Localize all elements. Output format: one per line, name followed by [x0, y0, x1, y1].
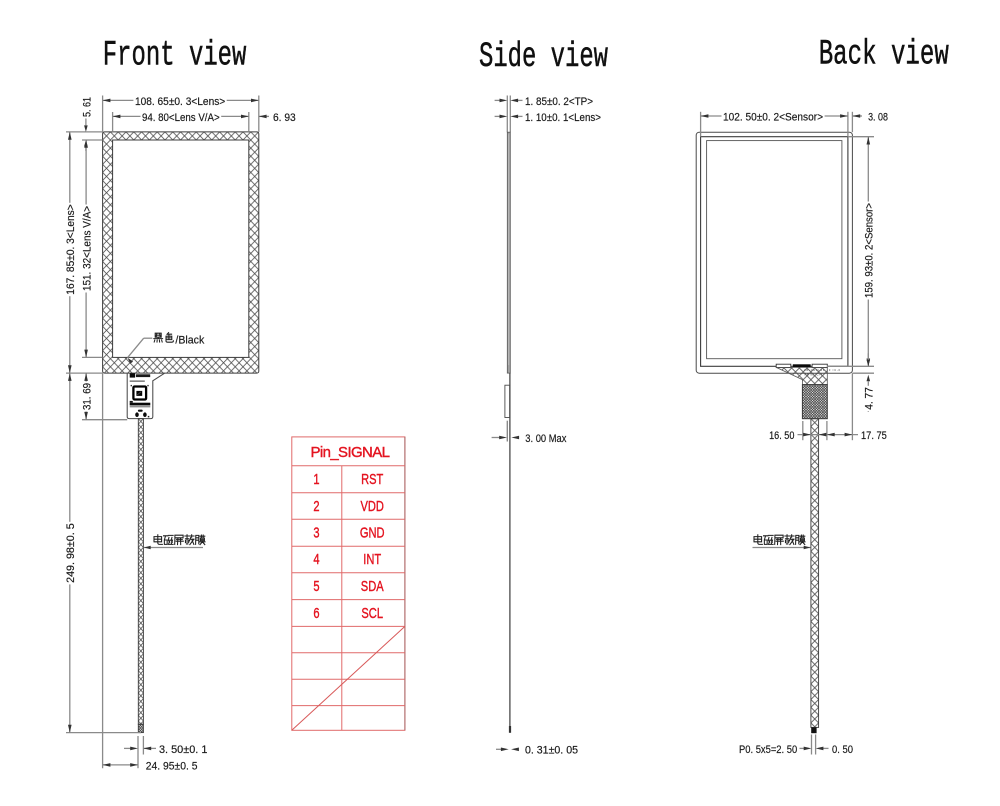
svg-text:SDA: SDA — [361, 577, 384, 594]
svg-text:3. 00 Max: 3. 00 Max — [525, 433, 567, 445]
svg-text:/Black: /Black — [175, 334, 205, 346]
svg-text:Pin_SIGNAL: Pin_SIGNAL — [311, 444, 391, 461]
svg-text:102. 50±0. 2<Sensor>: 102. 50±0. 2<Sensor> — [723, 111, 823, 123]
svg-text:151. 32<Lens V/A>: 151. 32<Lens V/A> — [82, 206, 94, 291]
svg-text:16. 50: 16. 50 — [769, 430, 794, 442]
svg-text:VDD: VDD — [360, 497, 383, 514]
svg-text:17. 75: 17. 75 — [861, 430, 887, 442]
svg-text:P0. 5x5=2. 50: P0. 5x5=2. 50 — [739, 744, 797, 756]
svg-text:159. 93±0. 2<Sensor>: 159. 93±0. 2<Sensor> — [864, 203, 876, 298]
svg-text:INT: INT — [363, 551, 381, 568]
svg-text:3. 50±0. 1: 3. 50±0. 1 — [159, 744, 208, 756]
svg-text:0. 31±0. 05: 0. 31±0. 05 — [525, 745, 578, 757]
svg-text:1. 10±0. 1<Lens>: 1. 10±0. 1<Lens> — [525, 112, 601, 124]
svg-text:5: 5 — [313, 577, 319, 594]
svg-text:3. 08: 3. 08 — [868, 111, 888, 123]
svg-text:2: 2 — [313, 497, 319, 514]
svg-text:24. 95±0. 5: 24. 95±0. 5 — [146, 760, 198, 772]
svg-text:Back view: Back view — [819, 34, 949, 74]
svg-text:RST: RST — [361, 470, 383, 487]
svg-text:6. 93: 6. 93 — [273, 112, 296, 124]
svg-text:4: 4 — [313, 551, 319, 568]
svg-text:1: 1 — [313, 470, 319, 487]
svg-text:108. 65±0. 3<Lens>: 108. 65±0. 3<Lens> — [135, 96, 225, 108]
svg-text:SCL: SCL — [361, 604, 383, 621]
svg-text:6: 6 — [313, 604, 319, 621]
svg-text:5. 61: 5. 61 — [81, 97, 93, 117]
svg-text:167. 85±0. 3<Lens>: 167. 85±0. 3<Lens> — [65, 204, 77, 294]
svg-text:0. 50: 0. 50 — [832, 744, 853, 756]
svg-text:Front view: Front view — [103, 35, 247, 75]
svg-text:GND: GND — [360, 524, 385, 541]
svg-text:4. 77: 4. 77 — [864, 387, 876, 410]
svg-text:94. 80<Lens V/A>: 94. 80<Lens V/A> — [142, 112, 220, 124]
svg-text:1. 85±0. 2<TP>: 1. 85±0. 2<TP> — [525, 96, 593, 108]
svg-text:3: 3 — [313, 524, 319, 541]
svg-text:Side view: Side view — [479, 37, 608, 77]
svg-text:249. 98±0. 5: 249. 98±0. 5 — [65, 523, 77, 583]
svg-text:31. 69: 31. 69 — [82, 383, 94, 410]
